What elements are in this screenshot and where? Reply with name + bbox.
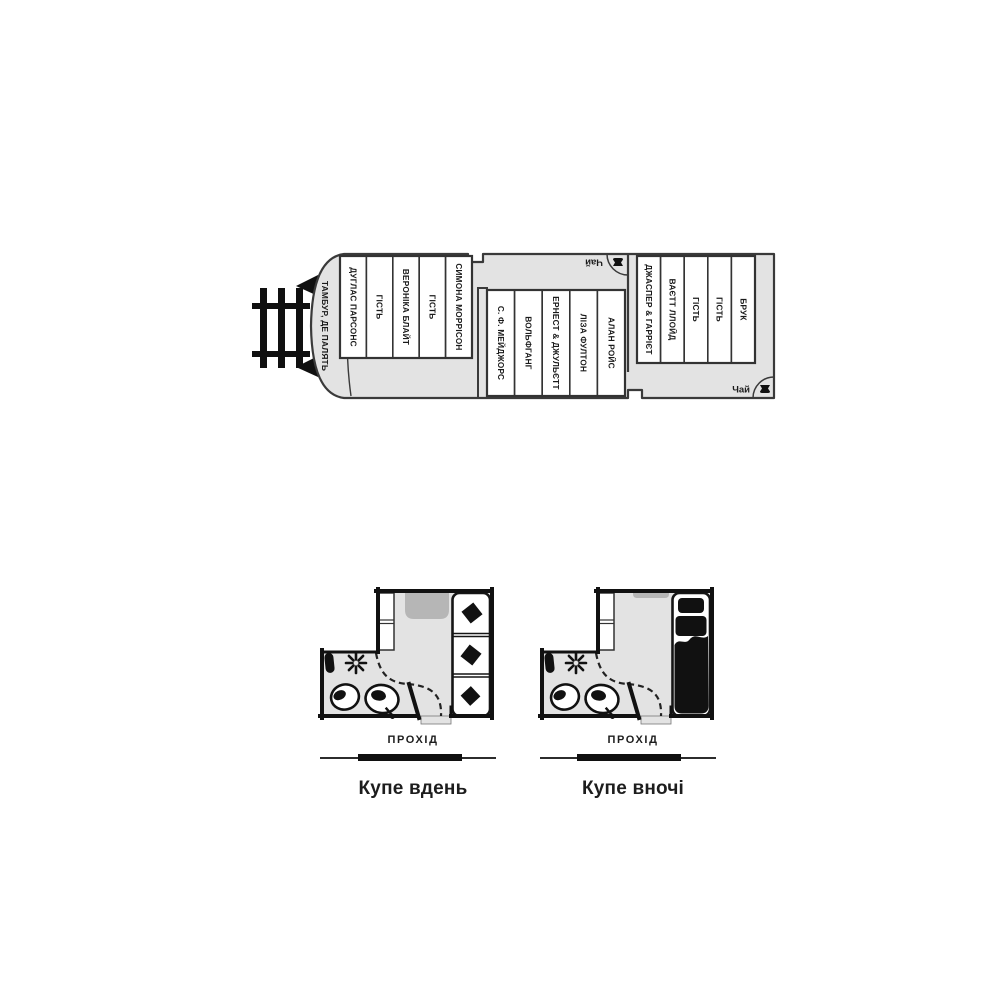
illustration-canvas: ТАМБУР, ДЕ ПАЛЯТЬ ДУГЛАС ПАРСОНС ГІСТЬ В… bbox=[0, 0, 1000, 1000]
compartment-label: АЛАН РОЙС bbox=[606, 317, 617, 369]
track-icon bbox=[252, 288, 310, 368]
compartment-label: С. Ф. МЕЙДЖОРС bbox=[496, 306, 507, 380]
pillow-icon bbox=[676, 616, 707, 636]
night-plan-caption: Купе вночі bbox=[538, 778, 728, 800]
compartment-label: ВОЛЬФГАНГ bbox=[524, 316, 533, 369]
compartment-label: ЛІЗА ФУЛТОН bbox=[579, 314, 588, 372]
compartment-label: ВАЄТТ ЛЛОЙД bbox=[668, 279, 679, 341]
day-compartment-plan bbox=[318, 583, 508, 743]
night-corridor-label: ПРОХІД bbox=[538, 734, 728, 746]
compartment-label: БРУК bbox=[738, 298, 747, 321]
tea-label: Чай bbox=[585, 257, 603, 268]
day-corridor-wall-bar bbox=[358, 754, 462, 761]
compartment-label: ГІСТЬ bbox=[428, 295, 437, 320]
compartment-label: СИМОНА МОРРІСОН bbox=[454, 263, 463, 350]
night-compartment-plan bbox=[538, 583, 728, 743]
compartment-label: ВЕРОНІКА БЛАЙТ bbox=[401, 269, 412, 345]
day-corridor-label: ПРОХІД bbox=[318, 734, 508, 746]
pillow-icon bbox=[678, 598, 704, 613]
corridor-doorway bbox=[641, 716, 671, 724]
compartment-label: ГІСТЬ bbox=[715, 297, 724, 322]
train-car-diagram: ТАМБУР, ДЕ ПАЛЯТЬ ДУГЛАС ПАРСОНС ГІСТЬ В… bbox=[252, 246, 782, 406]
night-corridor-wall-bar bbox=[577, 754, 681, 761]
compartment-label: ГІСТЬ bbox=[691, 297, 700, 322]
vestibule-label: ТАМБУР, ДЕ ПАЛЯТЬ bbox=[320, 281, 330, 371]
corridor-doorway bbox=[421, 716, 451, 724]
compartment-label: ДУГЛАС ПАРСОНС bbox=[348, 267, 357, 347]
day-plan-caption: Купе вдень bbox=[318, 778, 508, 800]
compartment-label: ДЖАСПЕР & ГАРРІЄТ bbox=[644, 264, 653, 354]
blanket bbox=[675, 636, 709, 714]
bench-seat bbox=[453, 593, 491, 716]
compartment-label: ЕРНЕСТ & ДЖУЛЬЄТТ bbox=[551, 296, 560, 389]
wardrobe bbox=[379, 593, 394, 650]
bed bbox=[673, 593, 711, 716]
tea-label: Чай bbox=[732, 384, 750, 395]
wardrobe bbox=[599, 593, 614, 650]
compartment-label: ГІСТЬ bbox=[375, 295, 384, 320]
washstand bbox=[405, 591, 449, 619]
